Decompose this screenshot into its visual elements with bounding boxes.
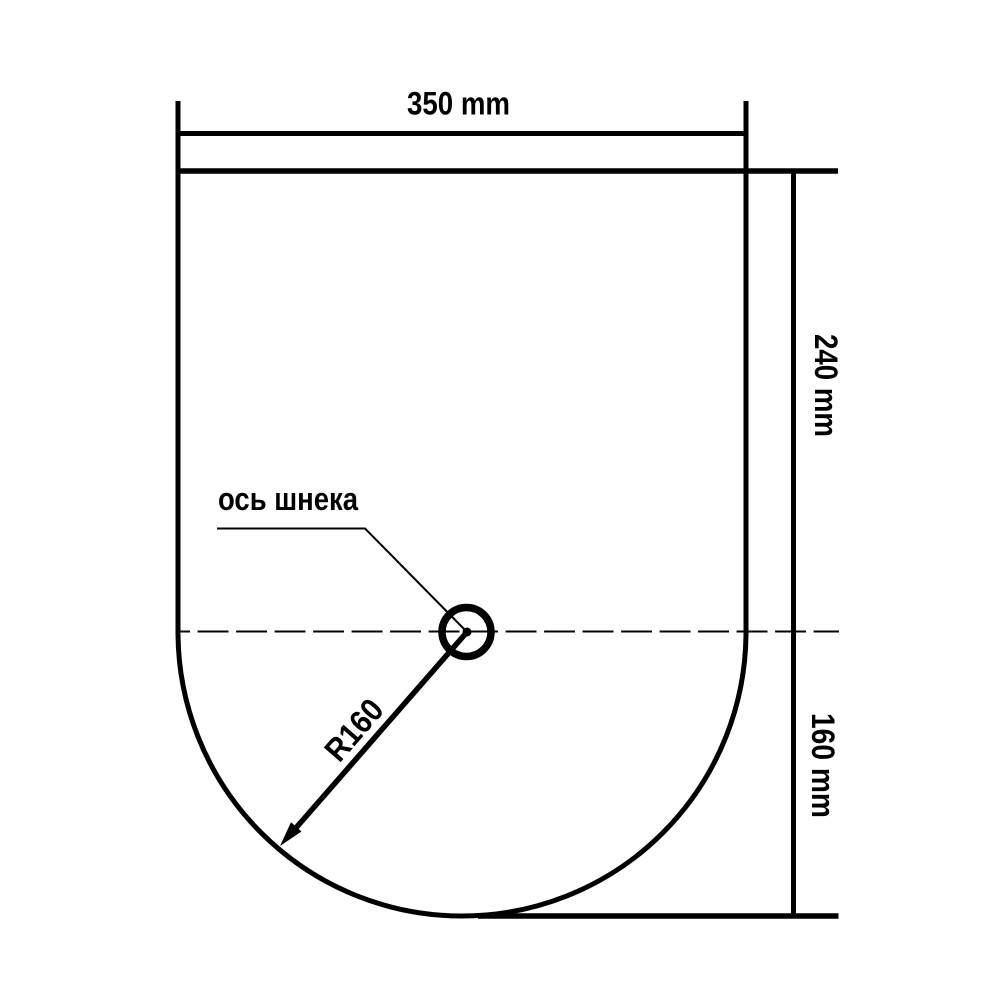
svg-text:160 mm: 160 mm <box>805 713 841 818</box>
svg-text:240 mm: 240 mm <box>808 334 844 437</box>
svg-text:ось шнека: ось шнека <box>218 481 359 517</box>
svg-text:350 mm: 350 mm <box>407 86 510 122</box>
